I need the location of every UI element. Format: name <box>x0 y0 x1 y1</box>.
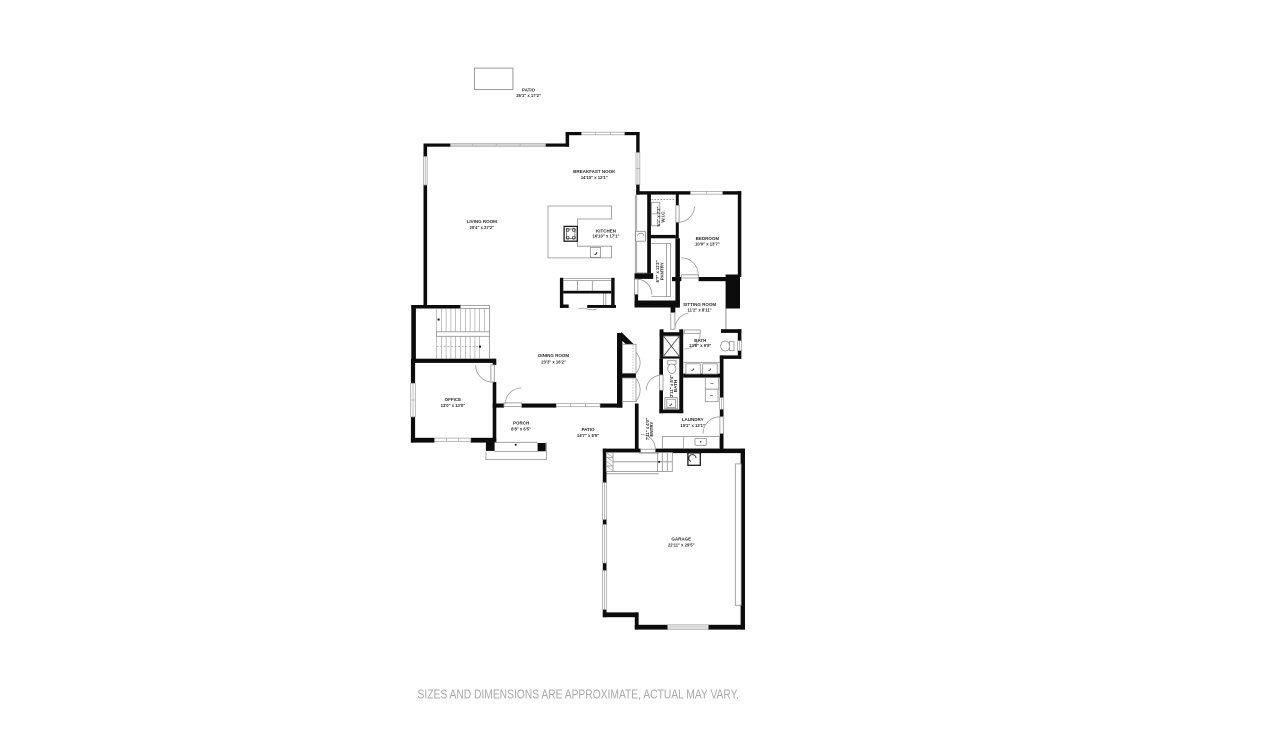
svg-text:6'7" x 11'2": 6'7" x 11'2" <box>655 260 660 282</box>
svg-text:OFFICE: OFFICE <box>445 397 462 402</box>
svg-text:22'11" x 29'5": 22'11" x 29'5" <box>668 542 695 547</box>
svg-text:BREAKFAST NOOK: BREAKFAST NOOK <box>573 169 616 174</box>
svg-text:35'1" x 17'2": 35'1" x 17'2" <box>516 93 541 98</box>
svg-text:5'1" x 7'3": 5'1" x 7'3" <box>656 207 661 227</box>
svg-text:11'2" x 8'11": 11'2" x 8'11" <box>688 308 712 313</box>
svg-text:ENTRY: ENTRY <box>649 422 654 437</box>
svg-text:PORCH: PORCH <box>513 421 529 426</box>
svg-text:23'3" x 16'2": 23'3" x 16'2" <box>541 360 566 365</box>
svg-text:KITCHEN: KITCHEN <box>596 228 616 233</box>
svg-text:BEDROOM: BEDROOM <box>696 236 720 241</box>
svg-text:14'10" x 12'1": 14'10" x 12'1" <box>581 175 608 180</box>
svg-text:2'11" x 8'4": 2'11" x 8'4" <box>669 375 674 397</box>
svg-text:14'7" x 8'9": 14'7" x 8'9" <box>577 433 599 438</box>
svg-text:PATIO: PATIO <box>581 427 595 432</box>
svg-text:10'1" x 12'1": 10'1" x 12'1" <box>680 423 705 428</box>
svg-text:DINING ROOM: DINING ROOM <box>538 353 569 358</box>
svg-text:10'9" x 13'7": 10'9" x 13'7" <box>695 241 720 246</box>
svg-text:16'10" x 17'1": 16'10" x 17'1" <box>593 234 620 239</box>
svg-text:SITTING ROOM: SITTING ROOM <box>683 302 716 307</box>
svg-text:20'4" x 27'2": 20'4" x 27'2" <box>470 225 495 230</box>
svg-text:LIVING ROOM: LIVING ROOM <box>467 219 498 224</box>
svg-text:8'8" x 6'5": 8'8" x 6'5" <box>511 427 531 432</box>
svg-text:SIZES AND DIMENSIONS ARE APPRO: SIZES AND DIMENSIONS ARE APPROXIMATE, AC… <box>418 686 740 701</box>
svg-text:W.I.C.: W.I.C. <box>661 210 666 222</box>
svg-text:BATH: BATH <box>673 380 678 392</box>
svg-text:13'0" x 13'0": 13'0" x 13'0" <box>441 403 466 408</box>
svg-text:LAUNDRY: LAUNDRY <box>682 417 704 422</box>
svg-text:GARAGE: GARAGE <box>671 536 691 541</box>
svg-text:PANTRY: PANTRY <box>660 262 665 280</box>
svg-text:7'11" x 4'0": 7'11" x 4'0" <box>645 418 650 440</box>
svg-text:PATIO: PATIO <box>522 87 536 92</box>
svg-text:13'8" x 6'8": 13'8" x 6'8" <box>689 343 711 348</box>
